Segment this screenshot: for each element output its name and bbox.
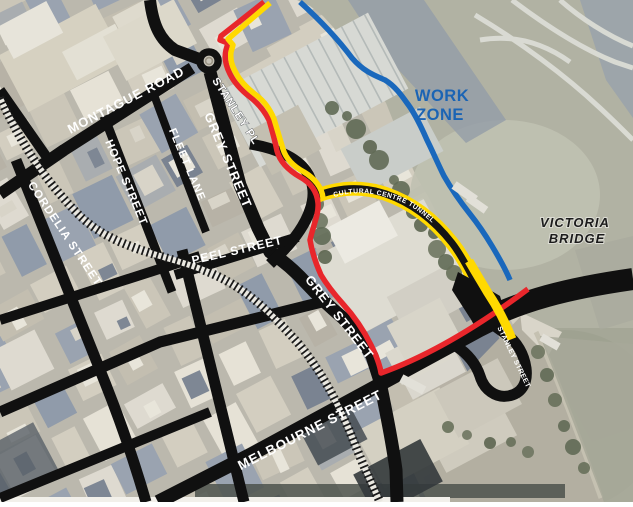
svg-text:ZONE: ZONE	[416, 106, 464, 124]
svg-text:WORK: WORK	[415, 87, 469, 105]
svg-text:VICTORIA: VICTORIA	[540, 215, 610, 230]
svg-text:BRIDGE: BRIDGE	[549, 231, 606, 246]
